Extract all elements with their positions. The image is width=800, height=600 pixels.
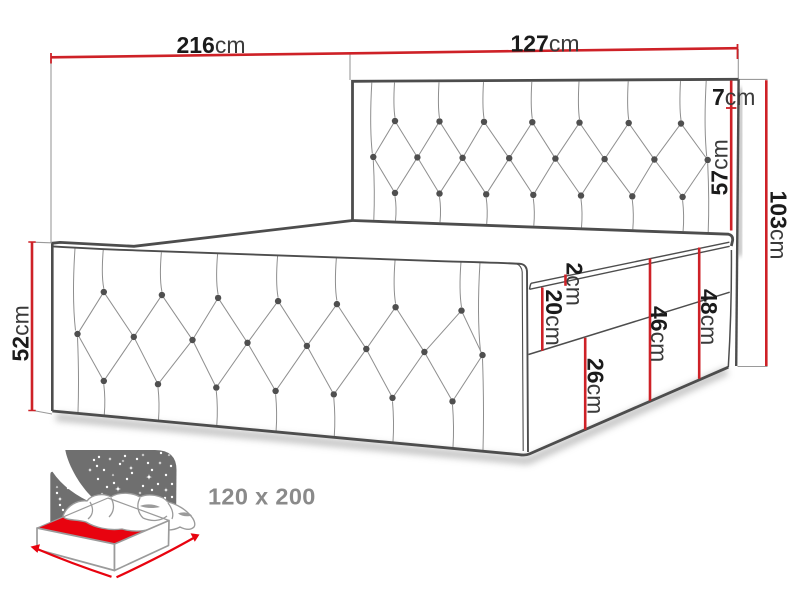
svg-text:52cm: 52cm	[8, 305, 34, 361]
svg-text:7cm: 7cm	[712, 84, 755, 110]
svg-text:46cm: 46cm	[646, 306, 672, 362]
svg-text:120 x 200: 120 x 200	[208, 484, 316, 510]
svg-text:103cm: 103cm	[766, 191, 792, 260]
svg-text:57cm: 57cm	[707, 139, 733, 195]
svg-text:20cm: 20cm	[541, 290, 567, 346]
svg-text:216cm: 216cm	[176, 32, 245, 58]
svg-text:127cm: 127cm	[510, 31, 579, 57]
svg-text:48cm: 48cm	[696, 289, 722, 345]
svg-text:26cm: 26cm	[583, 358, 609, 414]
